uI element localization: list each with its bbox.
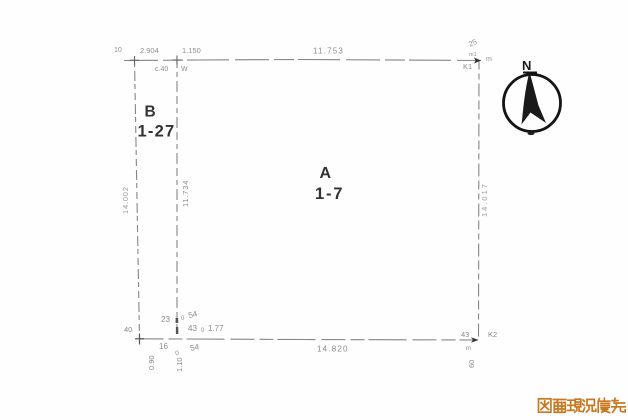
svg-text:43: 43 — [188, 324, 197, 333]
svg-text:40: 40 — [124, 325, 132, 334]
svg-text:1.10: 1.10 — [175, 357, 184, 372]
svg-text:1-27: 1-27 — [138, 123, 176, 141]
svg-text:N: N — [522, 58, 531, 73]
svg-text:0.90: 0.90 — [147, 355, 156, 370]
svg-text:11.753: 11.753 — [313, 47, 344, 56]
svg-text:1.150: 1.150 — [182, 46, 201, 55]
svg-text:1.77: 1.77 — [208, 324, 224, 333]
svg-text:23: 23 — [161, 315, 170, 324]
svg-text:11.734: 11.734 — [181, 180, 190, 207]
svg-text:B: B — [145, 104, 156, 121]
svg-text:16: 16 — [159, 342, 168, 351]
svg-text:14.002: 14.002 — [121, 186, 130, 214]
svg-text:K2: K2 — [488, 330, 497, 339]
svg-text:1-7: 1-7 — [315, 185, 344, 203]
svg-text:43: 43 — [461, 330, 469, 339]
svg-text:60: 60 — [467, 360, 476, 368]
svg-text:m1: m1 — [469, 52, 477, 58]
svg-text:c.40: c.40 — [155, 66, 168, 73]
svg-text:W: W — [181, 66, 188, 73]
svg-text:14.017: 14.017 — [480, 182, 489, 217]
svg-text:K1: K1 — [463, 62, 472, 71]
svg-text:A: A — [320, 165, 332, 182]
svg-text:2.904: 2.904 — [140, 46, 159, 55]
svg-text:10: 10 — [114, 47, 122, 54]
svg-text:m: m — [466, 346, 471, 352]
svg-text:m: m — [486, 56, 492, 63]
svg-text:14.820: 14.820 — [317, 345, 349, 354]
